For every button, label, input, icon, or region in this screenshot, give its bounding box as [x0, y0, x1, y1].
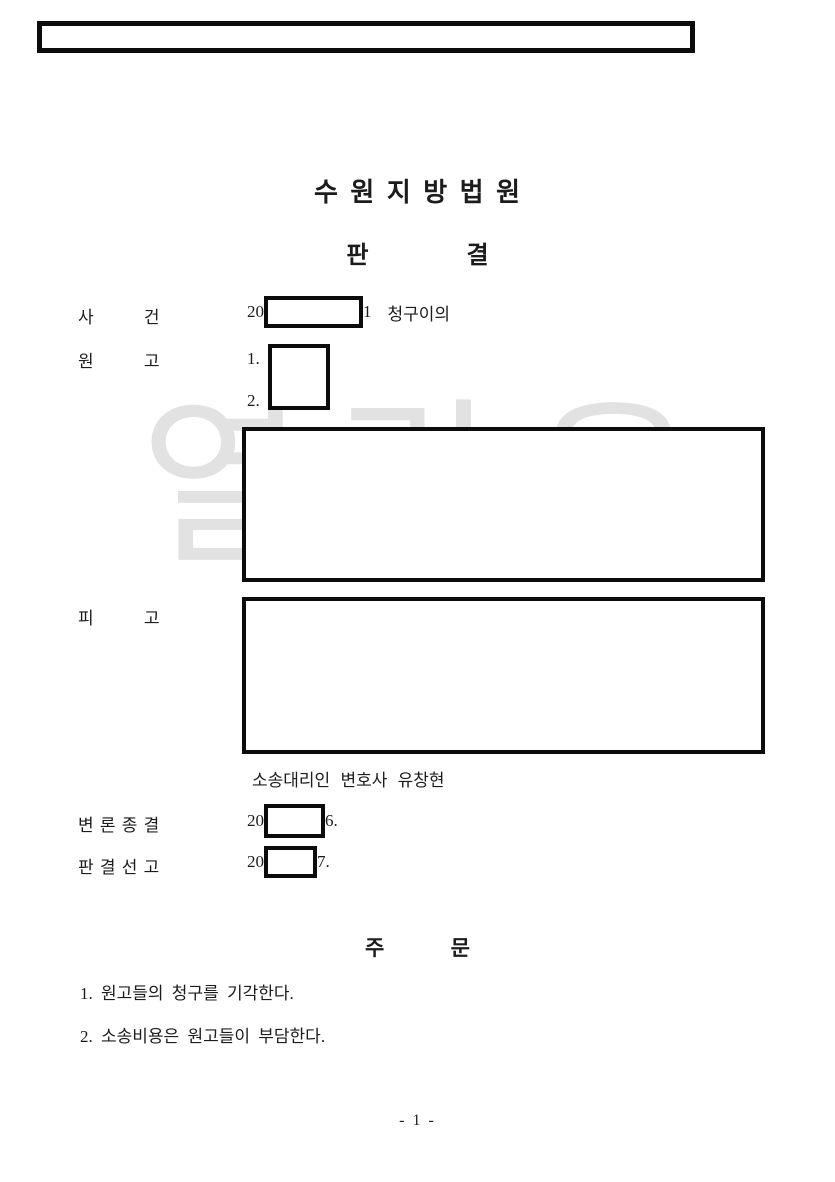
hearing-closed-suffix: 6.	[325, 811, 338, 831]
judgment-date-suffix: 7.	[317, 852, 330, 872]
judgment-date-label: 판 결 선 고	[78, 853, 159, 878]
document-type-title: 판 결	[0, 235, 835, 270]
plaintiff-item-2: 2.	[247, 391, 260, 411]
redaction-box-defendant-details	[242, 597, 765, 754]
redaction-box-plaintiff-names	[268, 344, 330, 410]
defendant-label: 피 고	[78, 604, 160, 629]
plaintiff-label: 원 고	[78, 347, 160, 372]
redaction-box-header	[37, 21, 695, 53]
plaintiff-item-1: 1.	[247, 349, 260, 369]
judgment-date-row: 20 7.	[247, 846, 330, 878]
court-name: 수 원 지 방 법 원	[0, 172, 835, 209]
case-type: 청구이의	[388, 300, 451, 325]
order-item: 1. 원고들의 청구를 기각한다.	[80, 979, 294, 1004]
redaction-box-case-number	[264, 296, 363, 328]
redaction-box-judgment-date	[264, 846, 317, 878]
hearing-closed-date-row: 20 6.	[247, 804, 338, 838]
defendant-counsel: 소송대리인 변호사 유창현	[252, 766, 445, 791]
hearing-closed-year-prefix: 20	[247, 811, 264, 831]
order-item: 2. 소송비용은 원고들이 부담한다.	[80, 1022, 325, 1047]
redaction-box-plaintiff-details	[242, 427, 765, 582]
hearing-closed-label: 변 론 종 결	[78, 811, 159, 836]
case-number-row: 20 1 청구이의	[247, 296, 450, 328]
judgment-document-page: 열람용 수 원 지 방 법 원 판 결 사 건 20 1 청구이의 원 고 1.…	[0, 0, 835, 1182]
redaction-box-hearing-date	[264, 804, 325, 838]
page-number: - 1 -	[0, 1112, 835, 1130]
order-section-header: 주 문	[0, 932, 835, 962]
case-label: 사 건	[78, 303, 160, 328]
case-number-suffix: 1	[363, 302, 372, 322]
judgment-year-prefix: 20	[247, 852, 264, 872]
case-year-prefix: 20	[247, 302, 264, 322]
